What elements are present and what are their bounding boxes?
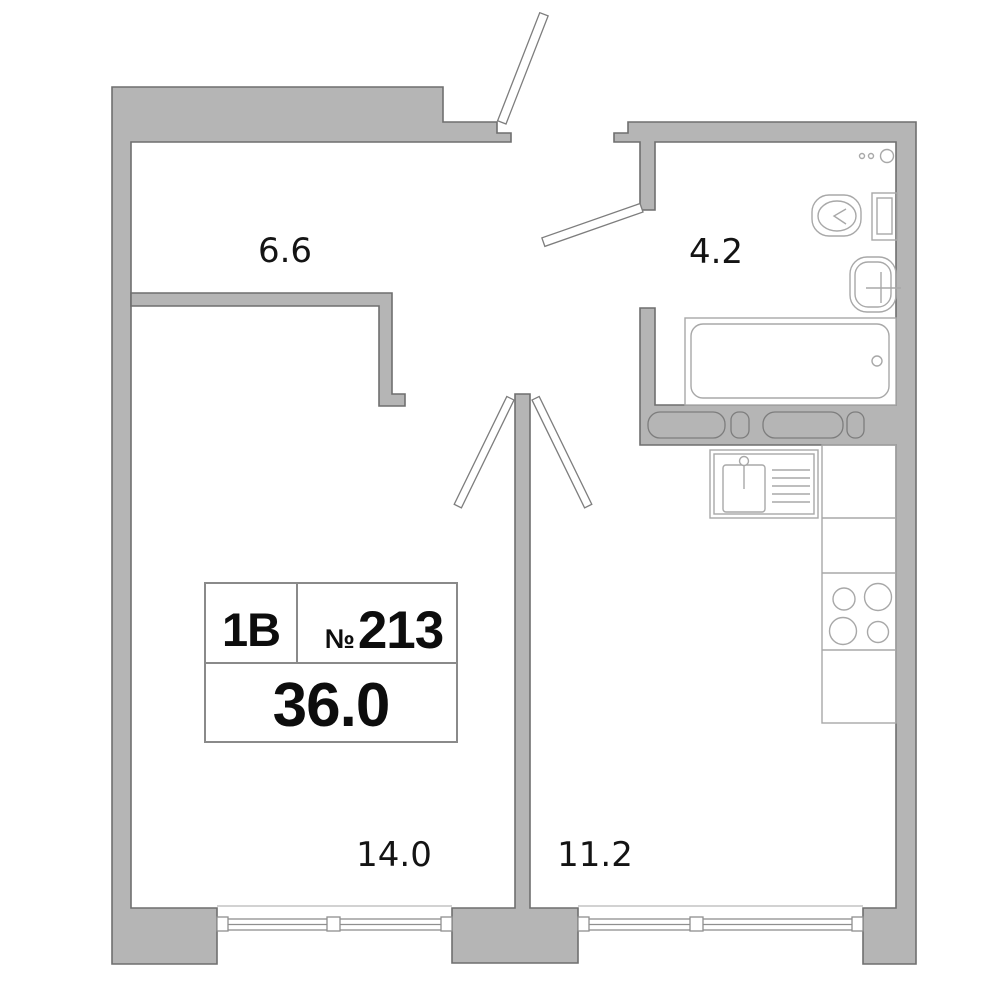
wall-hallway-partition: [131, 293, 405, 406]
wall-left-block: [112, 87, 511, 964]
floor-plan-page: 6.6 4.2 14.0 11.2 1В №213 36.0: [0, 0, 1000, 1000]
bathroom-fixtures: [685, 150, 901, 406]
kitchen-window: [578, 906, 863, 931]
walls: [112, 87, 916, 964]
bathtub-icon: [685, 318, 896, 405]
doors: [454, 13, 643, 508]
number-sign: №: [325, 624, 354, 654]
wall-right-block: [614, 122, 916, 964]
valve-icon: [869, 154, 874, 159]
toilet-icon: [812, 193, 897, 240]
floor-plan-svg: 6.6 4.2 14.0 11.2 1В №213 36.0: [0, 0, 1000, 1000]
bathroom-door-icon: [542, 204, 643, 247]
living-room-door-icon: [454, 396, 514, 507]
unit-info-box: 1В №213 36.0: [205, 583, 457, 742]
kitchen-fixtures: [710, 445, 896, 723]
living-room-window: [217, 906, 452, 931]
entry-door-icon: [498, 13, 549, 124]
drain-circle-icon: [881, 150, 894, 163]
stove-icon: [830, 584, 892, 645]
hallway-area-label: 6.6: [258, 231, 312, 271]
kitchen-area-label: 11.2: [557, 835, 633, 875]
washbasin-icon: [850, 257, 901, 312]
valve-icon: [860, 154, 865, 159]
bathroom-area-label: 4.2: [689, 232, 743, 272]
living-room-area-label: 14.0: [356, 835, 432, 875]
kitchen-sink-icon: [710, 450, 818, 518]
unit-type: 1В: [222, 603, 280, 656]
kitchen-counter: [822, 445, 896, 723]
kitchen-door-icon: [532, 396, 592, 507]
unit-total-area: 36.0: [273, 671, 390, 740]
